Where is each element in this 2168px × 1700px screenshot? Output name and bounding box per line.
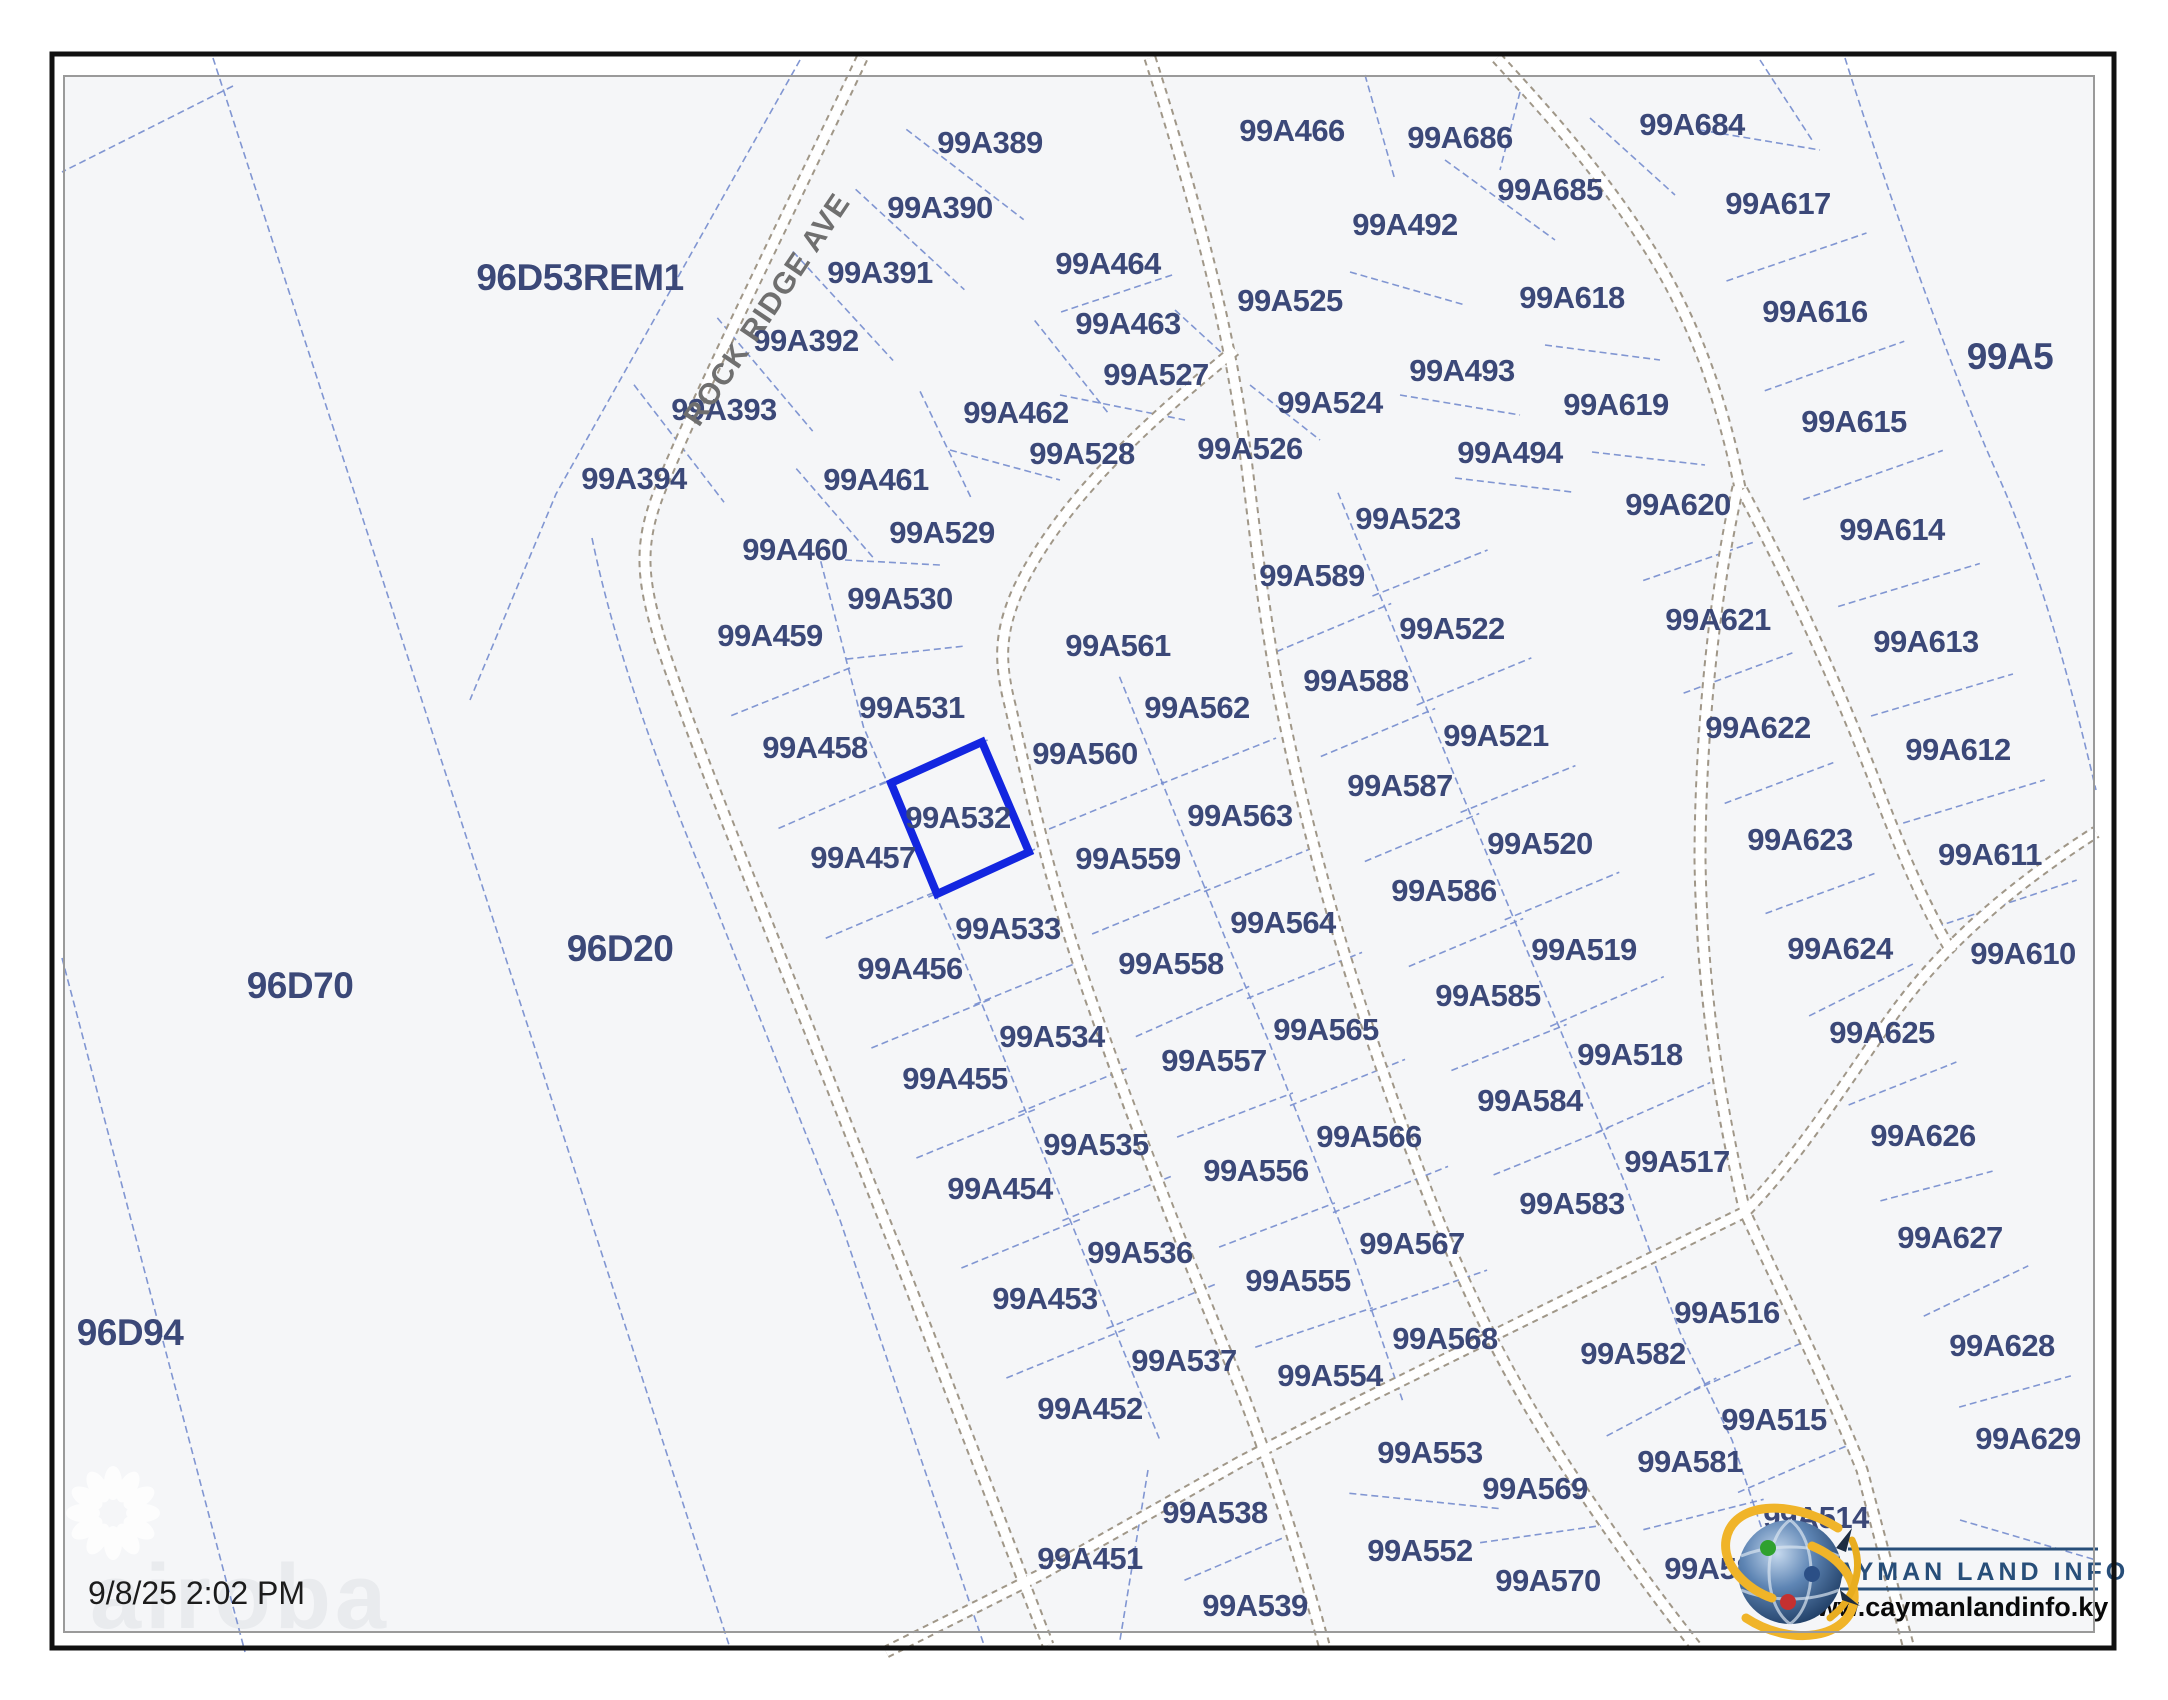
parcel-label[interactable]: 99A622 (1705, 710, 1811, 745)
parcel-label[interactable]: 99A620 (1625, 487, 1731, 522)
parcel-label[interactable]: 99A515 (1721, 1402, 1827, 1437)
parcel-label[interactable]: 99A516 (1674, 1295, 1780, 1330)
parcel-label[interactable]: 99A558 (1118, 946, 1224, 981)
parcel-label[interactable]: 99A626 (1870, 1118, 1976, 1153)
parcel-label[interactable]: 99A685 (1497, 172, 1603, 207)
parcel-label[interactable]: 99A519 (1531, 932, 1637, 967)
parcel-label[interactable]: 99A568 (1392, 1321, 1498, 1356)
parcel-label[interactable]: 99A528 (1029, 436, 1135, 471)
parcel-label[interactable]: 99A525 (1237, 283, 1343, 318)
parcel-label[interactable]: 99A466 (1239, 113, 1345, 148)
parcel-label[interactable]: 99A493 (1409, 353, 1515, 388)
parcel-label[interactable]: 99A618 (1519, 280, 1625, 315)
parcel-label[interactable]: 99A563 (1187, 798, 1293, 833)
parcel-label[interactable]: 99A523 (1355, 501, 1461, 536)
parcel-label[interactable]: 99A517 (1624, 1144, 1730, 1179)
parcel-label[interactable]: 99A586 (1391, 873, 1497, 908)
parcel-label[interactable]: 99A560 (1032, 736, 1138, 771)
parcel-label[interactable]: 99A611 (1938, 837, 2042, 872)
parcel-label[interactable]: 99A556 (1203, 1153, 1309, 1188)
parcel-label[interactable]: 99A459 (717, 618, 823, 653)
parcel-label[interactable]: 99A684 (1639, 107, 1746, 142)
parcel-label[interactable]: 99A532 (905, 800, 1011, 835)
parcel-label[interactable]: 99A461 (823, 462, 929, 497)
parcel-label[interactable]: 99A390 (887, 190, 993, 225)
parcel-label[interactable]: 99A454 (947, 1171, 1054, 1206)
logo-name: CAYMAN LAND INFO (1815, 1558, 2129, 1586)
parcel-label[interactable]: 99A614 (1839, 512, 1946, 547)
parcel-label[interactable]: 99A452 (1037, 1391, 1143, 1426)
parcel-label[interactable]: 99A456 (857, 951, 963, 986)
parcel-label[interactable]: 99A494 (1457, 435, 1564, 470)
parcel-label[interactable]: 96D20 (567, 928, 674, 969)
parcel-label[interactable]: 96D94 (77, 1312, 184, 1353)
parcel-label[interactable]: 99A619 (1563, 387, 1669, 422)
parcel-label[interactable]: 99A492 (1352, 207, 1458, 242)
parcel-label[interactable]: 99A610 (1970, 936, 2076, 971)
parcel-label[interactable]: 99A538 (1162, 1495, 1268, 1530)
parcel-label[interactable]: 99A566 (1316, 1119, 1422, 1154)
parcel-label[interactable]: 99A391 (827, 255, 933, 290)
parcel-label[interactable]: 99A627 (1897, 1220, 2003, 1255)
parcel-label[interactable]: 99A629 (1975, 1421, 2081, 1456)
parcel-label[interactable]: 99A615 (1801, 404, 1907, 439)
parcel-label[interactable]: 99A453 (992, 1281, 1098, 1316)
parcel-label[interactable]: 99A557 (1161, 1043, 1267, 1078)
parcel-label[interactable]: 99A457 (810, 840, 916, 875)
parcel-label[interactable]: 99A564 (1230, 905, 1337, 940)
parcel-label[interactable]: 99A587 (1347, 768, 1453, 803)
parcel-label[interactable]: 96D70 (247, 965, 354, 1006)
parcel-label[interactable]: 99A527 (1103, 357, 1209, 392)
parcel-label[interactable]: 99A582 (1580, 1336, 1686, 1371)
parcel-label[interactable]: 99A518 (1577, 1037, 1683, 1072)
parcel-label[interactable]: 99A686 (1407, 120, 1513, 155)
parcel-label[interactable]: 99A628 (1949, 1328, 2055, 1363)
parcel-label[interactable]: 99A581 (1637, 1444, 1743, 1479)
parcel-label[interactable]: 99A621 (1665, 602, 1771, 637)
parcel-label[interactable]: 99A460 (742, 532, 848, 567)
parcel-label[interactable]: 99A567 (1359, 1226, 1465, 1261)
parcel-label[interactable]: 99A589 (1259, 558, 1365, 593)
parcel-label[interactable]: 99A623 (1747, 822, 1853, 857)
parcel-label[interactable]: 99A565 (1273, 1012, 1379, 1047)
map-viewer: { "map": { "timestamp": "9/8/25 2:02 PM"… (0, 0, 2168, 1700)
parcel-label[interactable]: 99A537 (1131, 1343, 1237, 1378)
parcel-label[interactable]: 99A526 (1197, 431, 1303, 466)
parcel-label[interactable]: 99A463 (1075, 306, 1181, 341)
timestamp: 9/8/25 2:02 PM (88, 1575, 305, 1611)
parcel-label[interactable]: 99A536 (1087, 1235, 1193, 1270)
parcel-map-svg: airoba (0, 0, 2168, 1700)
parcel-label[interactable]: 99A552 (1367, 1533, 1473, 1568)
parcel-label[interactable]: 99A555 (1245, 1263, 1351, 1298)
parcel-label[interactable]: 99A529 (889, 515, 995, 550)
parcel-label[interactable]: 99A530 (847, 581, 953, 616)
parcel-label[interactable]: 99A394 (581, 461, 688, 496)
parcel-label[interactable]: 99A562 (1144, 690, 1250, 725)
parcel-label[interactable]: 99A584 (1477, 1083, 1584, 1118)
parcel-label[interactable]: 99A617 (1725, 186, 1831, 221)
parcel-label[interactable]: 99A533 (955, 911, 1061, 946)
parcel-label[interactable]: 99A531 (859, 690, 965, 725)
parcel-label[interactable]: 99A524 (1277, 385, 1384, 420)
parcel-label[interactable]: 99A554 (1277, 1358, 1384, 1393)
parcel-label[interactable]: 99A624 (1787, 931, 1894, 966)
parcel-label[interactable]: 99A616 (1762, 294, 1868, 329)
parcel-label[interactable]: 99A612 (1905, 732, 2011, 767)
parcel-label[interactable]: 99A521 (1443, 718, 1549, 753)
parcel-label[interactable]: 99A559 (1075, 841, 1181, 876)
parcel-label[interactable]: 99A535 (1043, 1127, 1149, 1162)
parcel-label[interactable]: 99A583 (1519, 1186, 1625, 1221)
parcel-label[interactable]: 99A588 (1303, 663, 1409, 698)
parcel-label[interactable]: 99A585 (1435, 978, 1541, 1013)
parcel-label[interactable]: 99A458 (762, 730, 868, 765)
parcel-label[interactable]: 99A534 (999, 1019, 1106, 1054)
parcel-label[interactable]: 99A451 (1037, 1541, 1143, 1576)
parcel-label[interactable]: 99A613 (1873, 624, 1979, 659)
parcel-label[interactable]: 99A389 (937, 125, 1043, 160)
parcel-label[interactable]: 99A561 (1065, 628, 1171, 663)
parcel-label[interactable]: 99A625 (1829, 1015, 1935, 1050)
parcel-label[interactable]: 99A455 (902, 1061, 1008, 1096)
parcel-label[interactable]: 99A522 (1399, 611, 1505, 646)
parcel-label[interactable]: 99A570 (1495, 1563, 1601, 1598)
parcel-label[interactable]: 99A5 (1967, 336, 2053, 377)
parcel-label[interactable]: 99A462 (963, 395, 1069, 430)
parcel-label[interactable]: 99A553 (1377, 1435, 1483, 1470)
parcel-label[interactable]: 96D53REM1 (476, 257, 683, 298)
parcel-label[interactable]: 99A539 (1202, 1588, 1308, 1623)
parcel-label[interactable]: 99A569 (1482, 1471, 1588, 1506)
parcel-label[interactable]: 99A464 (1055, 246, 1162, 281)
parcel-label[interactable]: 99A520 (1487, 826, 1593, 861)
